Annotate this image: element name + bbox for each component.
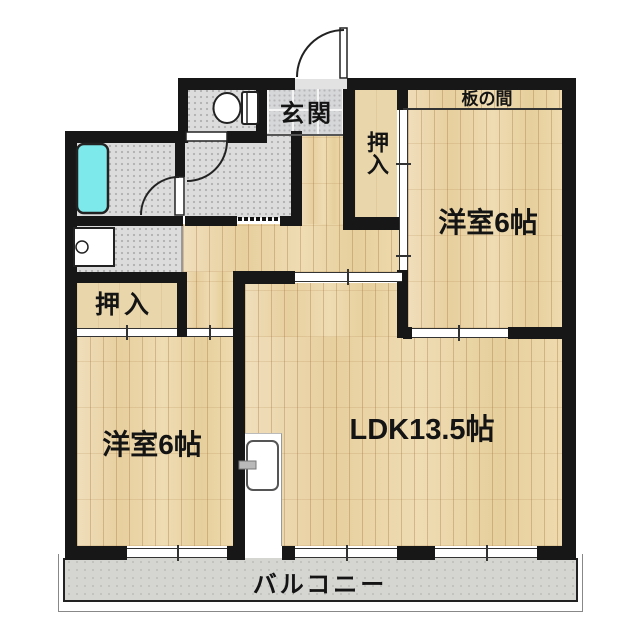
closet-left-label: 押入 <box>95 285 153 321</box>
balcony-label: バルコニー <box>253 565 388 600</box>
bedroom-left-label: 洋室6帖 <box>102 423 202 463</box>
ldk-label: LDK13.5帖 <box>349 406 494 448</box>
appliance-handle-icon <box>239 461 256 469</box>
toilet-tank-icon <box>242 92 258 124</box>
entrance-door-leaf <box>340 28 347 78</box>
toilet-bowl-icon <box>214 93 241 123</box>
bath-door-swing-arc <box>141 177 179 215</box>
bedroom-right-label: 洋室6帖 <box>438 201 538 241</box>
threshold-dashes <box>238 217 278 221</box>
genkan-label: 玄関 <box>280 94 334 129</box>
itanoma-label: 板の間 <box>462 85 513 110</box>
bathtub-icon <box>77 144 108 213</box>
toilet-door-leaf <box>186 132 227 141</box>
vanity-faucet-icon <box>76 241 88 253</box>
bath-door-leaf <box>175 177 184 215</box>
entrance-door-swing-arc <box>297 30 344 77</box>
closet-top-label: 押入 <box>360 131 392 175</box>
toilet-door-swing-arc <box>187 141 227 181</box>
floor-plan: 玄関 押入 板の間 洋室6帖 押入 洋室6帖 LDK13.5帖 バルコニー <box>0 0 640 640</box>
